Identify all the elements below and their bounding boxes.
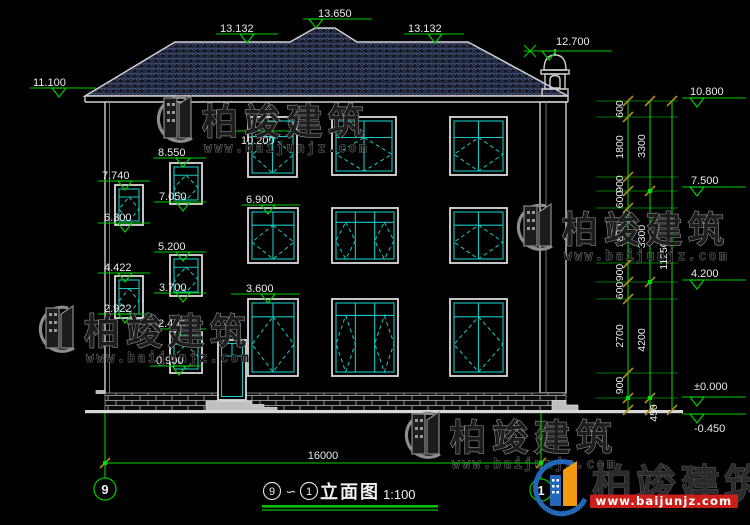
- dimension-value: 600: [614, 100, 626, 118]
- dimension-value: 900: [614, 264, 626, 282]
- roof: [85, 28, 568, 96]
- title-separator: ∽: [286, 484, 297, 499]
- title-name: 立面图: [320, 481, 380, 503]
- elevation-value: 10.800: [690, 86, 724, 98]
- window: [450, 208, 507, 263]
- dimension-value: 600: [614, 282, 626, 300]
- elevation-marker: ±0.000: [682, 381, 746, 406]
- elevation-value: -0.450: [694, 423, 725, 435]
- level-triangle-icon: [309, 19, 323, 28]
- watermark-url-text: www.baijunjz.com: [204, 141, 369, 156]
- elevation-value: 7.740: [102, 170, 130, 182]
- dimension-value: 900: [614, 175, 626, 193]
- watermark-brand-text: 柏竣建筑: [84, 312, 252, 353]
- dimension-value: 3300: [636, 134, 648, 158]
- axis-bubble-9: 9: [94, 413, 116, 500]
- logo-url-text: www.baijunjz.com: [596, 494, 733, 508]
- level-triangle-icon: [690, 187, 704, 196]
- elevation-marker: 7.500: [682, 175, 746, 196]
- watermark-url-text: www.baijunjz.com: [564, 249, 729, 264]
- elevation-value: 13.650: [318, 8, 352, 20]
- elevation-value: 3.600: [246, 283, 274, 295]
- title-axis-from: 9: [269, 486, 275, 498]
- overall-width-value: 16000: [308, 450, 339, 462]
- elevation-value: 7.050: [159, 191, 187, 203]
- level-triangle-icon: [52, 88, 66, 97]
- dimension-value: 600: [614, 191, 626, 209]
- window: [450, 299, 507, 376]
- dimension-value: 4200: [636, 328, 648, 352]
- elevation-marker: 12.700: [524, 36, 612, 60]
- watermark-url-text: www.baijunjz.com: [86, 351, 251, 366]
- elevation-marker: 13.132: [216, 23, 278, 43]
- elevation-value: 11.100: [33, 77, 66, 89]
- watermark: 柏竣建筑www.baijunjz.com: [518, 204, 730, 264]
- elevation-marker: 13.132: [404, 23, 464, 43]
- turret-arch-window: [550, 76, 560, 89]
- elevation-value: 12.700: [556, 36, 590, 48]
- dimension-value: 1800: [614, 135, 626, 159]
- dimension-value: 450: [648, 404, 660, 422]
- elevation-value: 13.132: [220, 23, 254, 35]
- elevation-value: 3.700: [159, 282, 187, 294]
- level-triangle-icon: [690, 397, 704, 406]
- elevation-value: 13.132: [408, 23, 442, 35]
- watermark-building-icon: [412, 414, 425, 454]
- watermark-building-icon: [46, 308, 59, 348]
- elevation-value: ±0.000: [694, 381, 728, 393]
- elevation-value: 4.422: [104, 262, 132, 274]
- ground-line: [85, 410, 683, 413]
- title-axis-to: 1: [306, 486, 312, 498]
- dimension-value: 2700: [614, 324, 626, 348]
- window: [248, 208, 298, 263]
- elevation-marker: 13.650: [303, 8, 372, 28]
- window: [450, 117, 507, 175]
- level-triangle-icon: [690, 280, 704, 289]
- title-scale: 1:100: [383, 487, 416, 502]
- level-triangle-icon: [690, 98, 704, 107]
- watermark: 柏竣建筑www.baijunjz.com: [158, 96, 370, 156]
- cad-elevation-screenshot: 11.10013.13213.65013.13212.70010.8007.50…: [0, 0, 750, 525]
- level-triangle-icon: [690, 414, 704, 423]
- elevation-value: 7.500: [691, 175, 719, 187]
- brick-plinth: [105, 393, 566, 411]
- elevation-drawing-canvas: 11.10013.13213.65013.13212.70010.8007.50…: [0, 0, 750, 525]
- watermark-building-icon: [524, 206, 537, 246]
- side-steps: [552, 401, 578, 412]
- dimension-value: 900: [614, 377, 626, 395]
- elevation-value: 6.900: [246, 194, 274, 206]
- elevation-marker: 4.200: [682, 268, 746, 289]
- elevation-marker: 11.100: [30, 77, 96, 97]
- watermark-brand-text: 柏竣建筑: [450, 418, 618, 459]
- elevation-marker: -0.450: [682, 414, 746, 435]
- watermark-brand-text: 柏竣建筑: [202, 102, 370, 143]
- watermark: 柏竣建筑www.baijunjz.com: [40, 306, 252, 366]
- brand-logo: 柏竣建筑 www.baijunjz.com: [536, 461, 750, 514]
- elevation-value: 8.550: [158, 147, 186, 159]
- logo-building-icon: [550, 475, 561, 506]
- watermark-building-icon: [164, 98, 177, 138]
- window: [332, 299, 398, 376]
- elevation-marker: 10.800: [682, 86, 746, 107]
- watermark-brand-text: 柏竣建筑: [562, 210, 730, 251]
- elevation-value: 6.300: [104, 212, 132, 224]
- axis-number-9: 9: [101, 482, 108, 497]
- elevation-value: 4.200: [691, 268, 719, 280]
- window: [248, 299, 298, 376]
- window: [332, 208, 398, 263]
- drawing-title: 9 ∽ 1 立面图 1:100: [262, 481, 438, 511]
- elevation-value: 5.200: [158, 241, 186, 253]
